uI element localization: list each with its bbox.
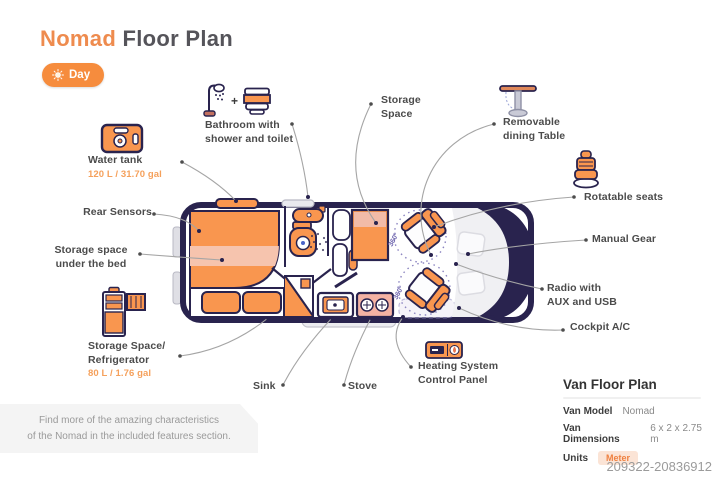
callout-radio: Radio with AUX and USB (547, 282, 637, 309)
seat-icon (571, 149, 601, 189)
callout-heating: Heating System Control Panel (418, 360, 508, 387)
callout-manual-gear: Manual Gear (592, 233, 682, 247)
divider (563, 397, 701, 399)
callout-fridge: Storage Space/ Refrigerator 80 L / 1.76 … (88, 340, 198, 381)
callout-stove: Stove (348, 380, 377, 394)
callout-under-bed: Storage space under the bed (48, 244, 134, 271)
watermark-id: 209322-20836912 (606, 459, 712, 474)
callout-bathroom: Bathroom with shower and toilet (205, 119, 305, 146)
callout-rotatable-seats: Rotatable seats (584, 191, 684, 205)
storage-cabinet (352, 210, 388, 260)
plus-separator: + (231, 94, 238, 108)
rear-bumper-upper (173, 227, 181, 257)
callout-cockpit-ac: Cockpit A/C (570, 321, 660, 335)
info-row-dimensions: Van Dimensions 6 x 2 x 2.75 m (563, 423, 713, 445)
callout-rear-sensors: Rear Sensors (78, 206, 152, 220)
heating-panel-icon (425, 341, 463, 359)
kitchen-sink-unit (318, 293, 353, 317)
water-tank-icon (100, 121, 144, 155)
info-panel-title: Van Floor Plan (563, 377, 713, 392)
under-bed-storage (190, 288, 284, 317)
toilet-icon (242, 87, 272, 115)
van-info-panel: Van Floor Plan Van Model Nomad Van Dimen… (563, 377, 713, 471)
callout-dining-table: Removable dining Table (503, 116, 573, 143)
dining-table-icon (498, 84, 538, 118)
info-row-model: Van Model Nomad (563, 406, 713, 417)
callout-water-tank: Water tank 120 L / 31.70 gal (88, 154, 198, 181)
water-tank-capacity: 120 L / 31.70 gal (88, 169, 198, 181)
callout-storage-space: Storage Space (381, 94, 441, 121)
footer-note: Find more of the amazing characteristics… (0, 404, 258, 453)
roof-window (282, 200, 314, 207)
rear-bumper-lower (173, 272, 181, 304)
callout-sink: Sink (253, 380, 276, 394)
shower-icon (203, 82, 227, 120)
nomad-floor-plan-page: Nomad Floor Plan Day (0, 0, 720, 480)
bathroom-icons: + (203, 82, 272, 120)
fridge-capacity: 80 L / 1.76 gal (88, 368, 198, 380)
fridge-icon (101, 286, 147, 338)
stove-unit (357, 293, 393, 317)
